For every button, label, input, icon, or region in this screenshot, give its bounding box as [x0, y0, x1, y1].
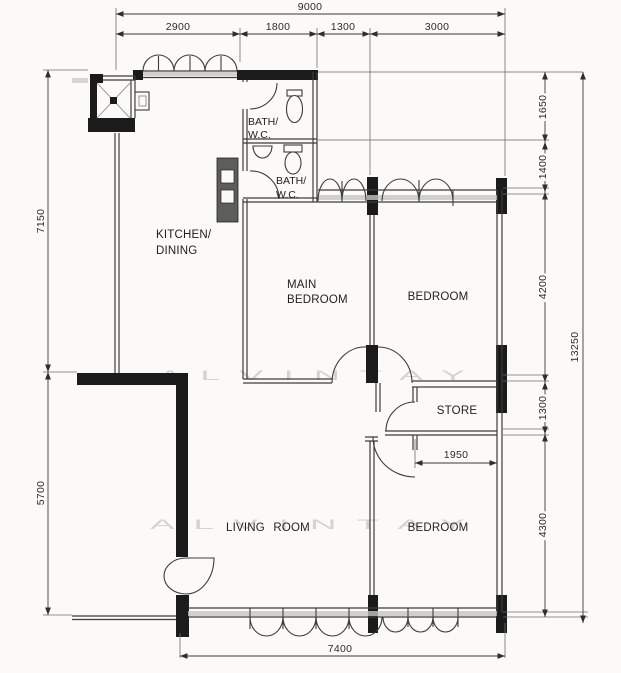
dim-w3: 1300	[331, 21, 356, 33]
bath2-door-arc	[250, 171, 279, 199]
room-label-bath1-line1: BATH/	[248, 116, 278, 128]
room-label-store: STORE	[437, 405, 478, 417]
entrance-door-leaf	[186, 558, 214, 594]
dim-bottom-width: 7400	[328, 643, 353, 655]
dim-r3: 4200	[537, 275, 549, 300]
floor-plan-sheet: A L V I N T A Y A L V I N T A Y	[0, 0, 621, 673]
lift-center-mark	[110, 97, 117, 104]
entrance-door-swing	[164, 558, 186, 594]
room-label-bath2-line1: BATH/	[276, 175, 306, 187]
room-label-main-bedroom-line2: BEDROOM	[287, 294, 348, 306]
toilet-bath2	[284, 145, 302, 174]
sink-bath2	[253, 146, 272, 158]
dim-w2: 1800	[266, 21, 291, 33]
dim-r4: 1300	[537, 396, 549, 421]
dim-w4: 3000	[425, 21, 450, 33]
room-label-bath2-line2: W.C.	[276, 189, 299, 201]
bedroom-window-arcs	[383, 617, 458, 632]
room-label-bath1-line2: W.C.	[248, 129, 271, 141]
dimension-lines	[48, 14, 583, 656]
windows	[143, 55, 497, 636]
bedroom-bottom-door-arc	[373, 437, 415, 477]
dim-w1: 2900	[166, 21, 191, 33]
toilet-bath1	[287, 90, 303, 123]
room-label-main-bedroom-line1: MAIN	[287, 279, 317, 291]
refuse-chute	[135, 92, 149, 110]
kitchen-window-arcs	[143, 55, 237, 71]
dim-overall-height: 13250	[569, 332, 581, 363]
floor-plan-drawing: A L V I N T A Y A L V I N T A Y	[0, 0, 621, 673]
dim-r1: 1650	[537, 95, 549, 120]
dim-overall-width: 9000	[298, 1, 323, 13]
watermark: A L V I N T A Y A L V I N T A Y	[150, 367, 470, 532]
store-door-arc	[386, 402, 415, 431]
extension-lines	[43, 8, 588, 658]
dim-left-top: 7150	[35, 209, 47, 234]
room-label-bedroom-bottom: BEDROOM	[408, 522, 469, 534]
room-label-kitchen-line1: KITCHEN/	[156, 229, 212, 241]
room-label-bedroom-top: BEDROOM	[408, 291, 469, 303]
room-label-living-room: LIVING ROOM	[226, 522, 310, 534]
room-label-kitchen-line2: DINING	[156, 245, 197, 257]
dim-left-bottom: 5700	[35, 481, 47, 506]
lift-shaft	[72, 76, 149, 118]
bath1-door-arc	[250, 83, 277, 109]
dim-store-width: 1950	[444, 449, 469, 461]
dim-r2: 1400	[537, 155, 549, 180]
dim-r5: 4300	[537, 513, 549, 538]
